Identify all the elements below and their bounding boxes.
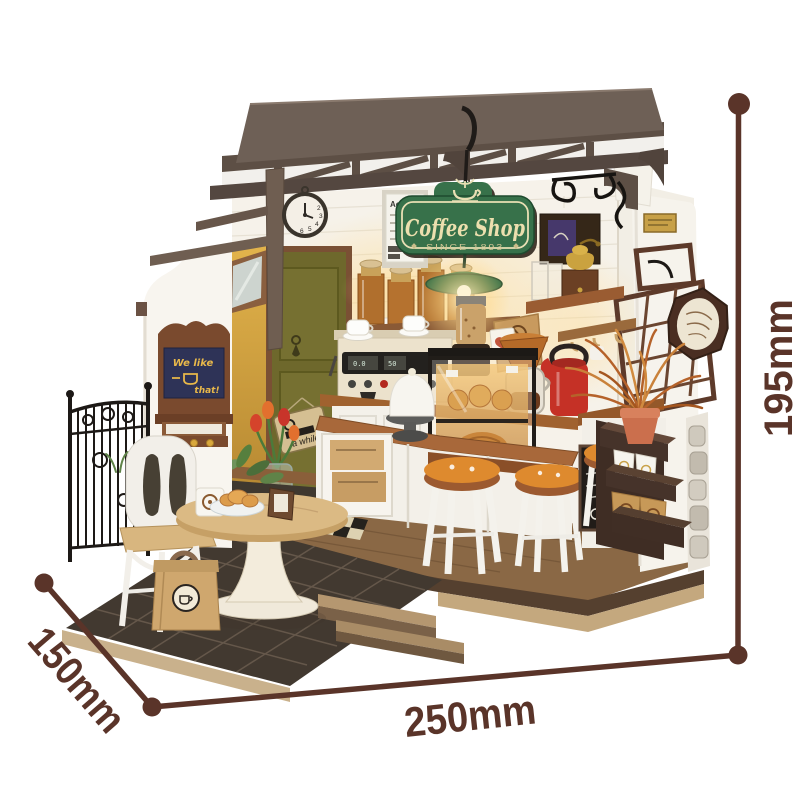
terracotta-pot [620, 408, 660, 418]
wall-bracket [136, 302, 147, 316]
chalkboard-line2: that! [194, 386, 219, 396]
bean-jar [358, 260, 384, 324]
chalkboard-line1: We like [173, 358, 214, 369]
clock-numeral-4: 4 [315, 221, 319, 228]
table-card-stand [268, 488, 294, 520]
clock-numeral-5: 5 [308, 226, 312, 233]
menu-chalkboard: We like that! [155, 321, 233, 447]
brass-plaque [644, 214, 676, 232]
clock-numeral-6: 6 [300, 228, 304, 235]
sign-subtitle: SINCE 1893 [426, 242, 504, 252]
bag-logo-icon [173, 585, 199, 611]
height-dimension-line [738, 115, 739, 652]
stone-pillar [686, 412, 710, 572]
product-photo: a while [0, 0, 800, 800]
espresso-display-left: 0.0 [353, 360, 366, 368]
width-dimension-label: 250mm [402, 685, 538, 746]
espresso-display-right: 50 [388, 360, 396, 368]
glass-cup [532, 262, 548, 300]
paper-bag [152, 553, 220, 630]
clock-numeral-3: 3 [319, 213, 323, 220]
clock-numeral-2: 2 [317, 205, 321, 212]
espresso-cup [343, 320, 373, 341]
miniature-coffee-shop-illustration: a while [0, 0, 800, 800]
height-dimension-label: 195mm [757, 299, 800, 437]
sign-title: Coffee Shop [405, 215, 525, 242]
tulip-flower [250, 414, 262, 432]
